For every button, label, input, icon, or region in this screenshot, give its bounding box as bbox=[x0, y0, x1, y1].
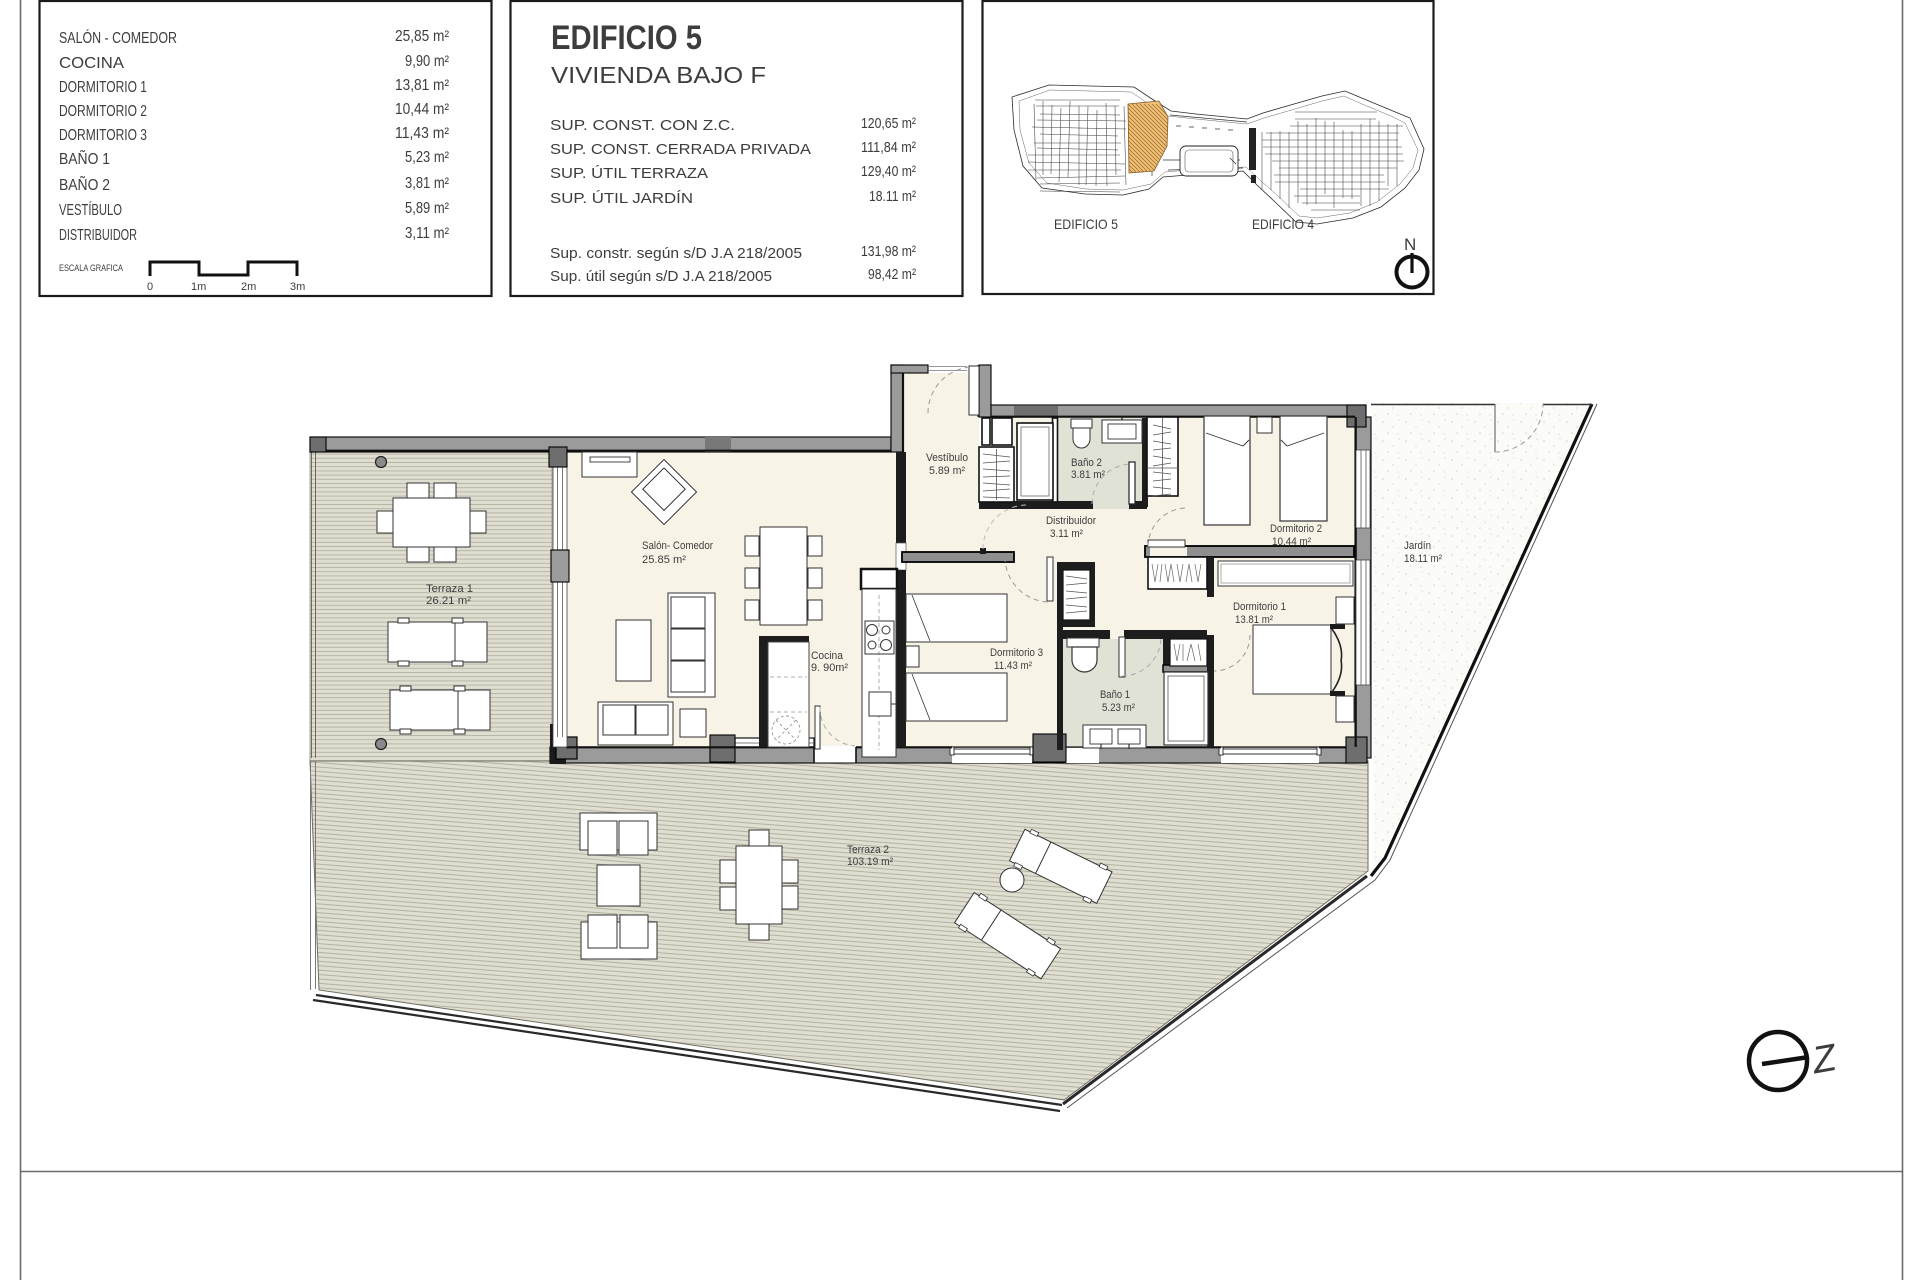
svg-text:13.81 m²: 13.81 m² bbox=[1235, 614, 1273, 626]
svg-text:SUP. CONST. CERRADA PRIVADA: SUP. CONST. CERRADA PRIVADA bbox=[550, 141, 811, 158]
svg-text:11.43 m²: 11.43 m² bbox=[994, 660, 1032, 672]
svg-text:COCINA: COCINA bbox=[59, 55, 125, 72]
svg-text:98,42 m²: 98,42 m² bbox=[868, 266, 916, 283]
svg-text:18.11 m²: 18.11 m² bbox=[869, 188, 916, 205]
svg-text:Dormitorio 3: Dormitorio 3 bbox=[990, 647, 1043, 659]
svg-text:18.11 m²: 18.11 m² bbox=[1404, 553, 1442, 565]
svg-text:10,44 m²: 10,44 m² bbox=[395, 101, 449, 118]
svg-text:3.11 m²: 3.11 m² bbox=[1050, 528, 1083, 540]
svg-text:Baño 1: Baño 1 bbox=[1100, 689, 1130, 701]
svg-text:Dormitorio 2: Dormitorio 2 bbox=[1270, 523, 1322, 535]
svg-text:Dormitorio 1: Dormitorio 1 bbox=[1233, 601, 1286, 613]
svg-text:131,98 m²: 131,98 m² bbox=[861, 243, 916, 260]
svg-text:SUP. ÚTIL TERRAZA: SUP. ÚTIL TERRAZA bbox=[550, 165, 708, 182]
svg-text:Salón- Comedor: Salón- Comedor bbox=[642, 540, 713, 552]
svg-text:129,40 m²: 129,40 m² bbox=[861, 163, 916, 180]
svg-text:3,11 m²: 3,11 m² bbox=[405, 225, 449, 242]
svg-text:DORMITORIO 1: DORMITORIO 1 bbox=[59, 79, 147, 96]
svg-text:25.85 m²: 25.85 m² bbox=[642, 554, 686, 566]
svg-text:3.81 m²: 3.81 m² bbox=[1071, 469, 1105, 481]
svg-text:11,43 m²: 11,43 m² bbox=[395, 125, 449, 142]
svg-text:N: N bbox=[1404, 235, 1416, 254]
svg-text:VESTÍBULO: VESTÍBULO bbox=[59, 202, 122, 219]
svg-text:EDIFICIO 5: EDIFICIO 5 bbox=[1054, 216, 1118, 232]
svg-text:DISTRIBUIDOR: DISTRIBUIDOR bbox=[59, 227, 137, 244]
svg-text:SUP. CONST. CON Z.C.: SUP. CONST. CON Z.C. bbox=[550, 117, 735, 134]
svg-text:5,89 m²: 5,89 m² bbox=[405, 200, 449, 217]
svg-text:SUP. ÚTIL JARDÍN: SUP. ÚTIL JARDÍN bbox=[550, 190, 693, 207]
svg-text:5.89 m²: 5.89 m² bbox=[929, 465, 965, 477]
svg-text:Sup. útil según s/D J.A 218/20: Sup. útil según s/D J.A 218/2005 bbox=[550, 268, 772, 285]
svg-text:ESCALA GRAFICA: ESCALA GRAFICA bbox=[59, 263, 123, 273]
svg-text:Distribuidor: Distribuidor bbox=[1046, 515, 1096, 527]
svg-text:111,84 m²: 111,84 m² bbox=[861, 139, 916, 156]
svg-text:EDIFICIO 4: EDIFICIO 4 bbox=[1252, 216, 1314, 232]
svg-text:BAÑO 2: BAÑO 2 bbox=[59, 177, 110, 194]
svg-text:3,81 m²: 3,81 m² bbox=[405, 175, 449, 192]
svg-text:EDIFICIO 5: EDIFICIO 5 bbox=[551, 19, 702, 57]
svg-text:10.44 m²: 10.44 m² bbox=[1272, 536, 1311, 548]
svg-text:3m: 3m bbox=[290, 281, 305, 293]
svg-text:Jardín: Jardín bbox=[1404, 540, 1431, 552]
svg-text:103.19 m²: 103.19 m² bbox=[847, 856, 893, 868]
svg-text:BAÑO 1: BAÑO 1 bbox=[59, 151, 110, 168]
svg-text:DORMITORIO 2: DORMITORIO 2 bbox=[59, 103, 147, 120]
svg-text:Cocina: Cocina bbox=[811, 650, 844, 662]
svg-text:Terraza 2: Terraza 2 bbox=[847, 844, 889, 856]
svg-text:0: 0 bbox=[147, 281, 153, 293]
svg-text:Vestíbulo: Vestíbulo bbox=[926, 452, 968, 464]
svg-text:25,85 m²: 25,85 m² bbox=[395, 28, 449, 45]
svg-text:2m: 2m bbox=[241, 281, 256, 293]
svg-text:120,65 m²: 120,65 m² bbox=[861, 115, 916, 132]
svg-text:Sup. constr. según s/D J.A 218: Sup. constr. según s/D J.A 218/2005 bbox=[550, 245, 802, 262]
svg-text:Terraza 1: Terraza 1 bbox=[426, 583, 473, 595]
svg-text:5,23 m²: 5,23 m² bbox=[405, 149, 449, 166]
svg-text:1m: 1m bbox=[191, 281, 206, 293]
svg-text:SALÓN - COMEDOR: SALÓN - COMEDOR bbox=[59, 30, 177, 47]
svg-text:DORMITORIO 3: DORMITORIO 3 bbox=[59, 127, 147, 144]
svg-text:5.23 m²: 5.23 m² bbox=[1102, 702, 1135, 714]
svg-text:Baño 2: Baño 2 bbox=[1071, 457, 1102, 469]
svg-text:9. 90m²: 9. 90m² bbox=[811, 662, 848, 674]
svg-text:VIVIENDA BAJO F: VIVIENDA BAJO F bbox=[551, 62, 766, 88]
svg-text:26.21 m²: 26.21 m² bbox=[426, 595, 471, 607]
svg-text:13,81 m²: 13,81 m² bbox=[395, 77, 449, 94]
svg-text:9,90 m²: 9,90 m² bbox=[405, 53, 449, 70]
